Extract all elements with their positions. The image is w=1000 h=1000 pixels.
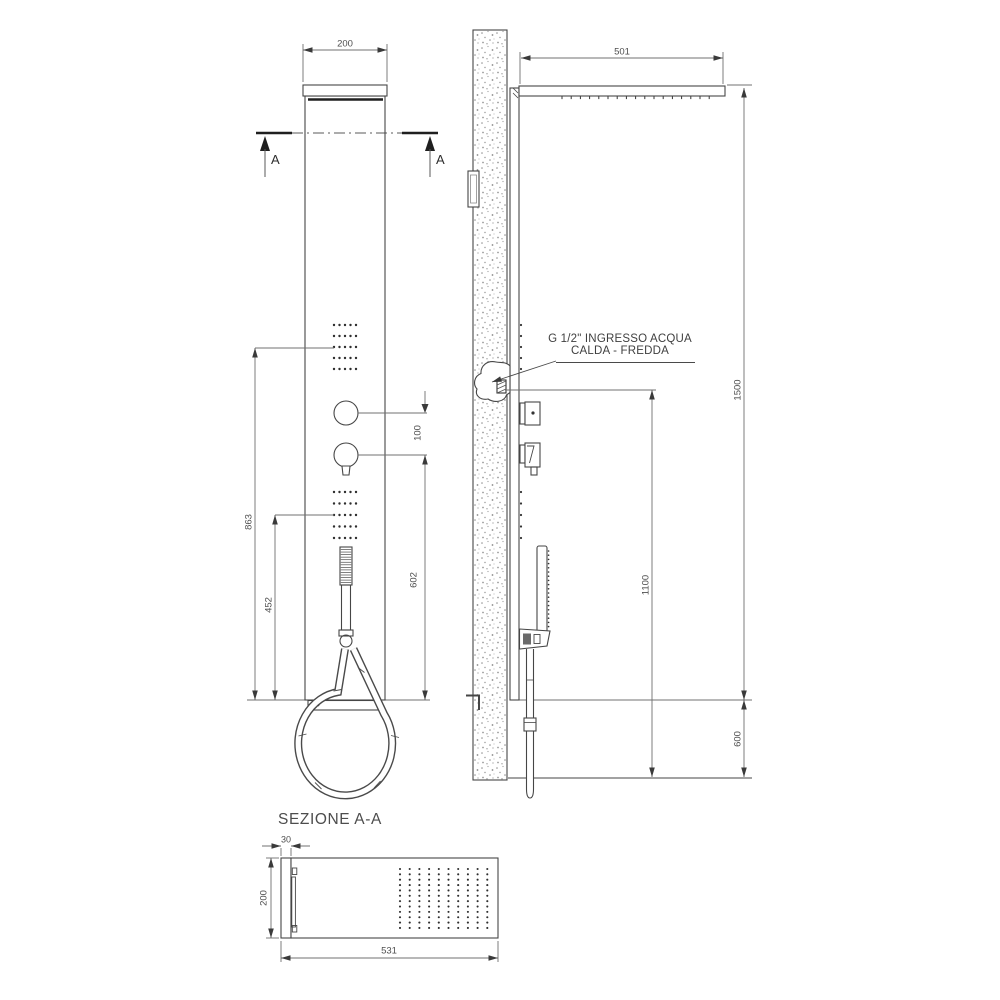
hose-connector [524, 718, 536, 731]
inlet-note-line1: G 1/2" INGRESSO ACQUA [548, 333, 692, 345]
water-inlet-detail [475, 361, 695, 401]
dim-inlet-height: 1100 [641, 575, 651, 595]
handshower-side [520, 546, 551, 649]
front-panel-body [305, 96, 385, 700]
section-panel-strip [281, 858, 291, 938]
technical-drawing-canvas: 200 A A 863 452 100 602 501 1500 1100 60… [0, 0, 1000, 1000]
dim-panel-thickness: 30 [281, 836, 291, 845]
side-panel-profile [510, 88, 519, 700]
upper-wall-bracket [468, 171, 479, 207]
handshower-grip-texture [341, 550, 351, 583]
dim-section-width: 200 [259, 890, 269, 906]
drawing-linework [0, 0, 1000, 1000]
front-shower-head [303, 85, 387, 96]
section-arrow-right [425, 136, 435, 177]
side-diverter-knob [520, 402, 540, 425]
lower-jet-grid [333, 491, 357, 539]
inlet-note: G 1/2" INGRESSO ACQUA CALDA - FREDDA [548, 334, 692, 357]
handshower-side-spray-dots [548, 550, 550, 627]
dim-total-depth: 531 [381, 946, 397, 956]
wall-section [473, 30, 507, 780]
dim-floor-clearance: 600 [733, 731, 743, 747]
hose-loop [298, 649, 399, 795]
section-head-body [291, 858, 498, 938]
section-view [262, 846, 498, 962]
mixer-knob-handle [342, 466, 350, 475]
dim-mixer-to-bottom: 602 [409, 572, 419, 588]
side-upper-jets [520, 324, 522, 370]
dim-head-depth: 501 [614, 47, 630, 57]
dim-panel-height: 1500 [733, 379, 743, 400]
upper-jet-grid [333, 324, 357, 370]
section-title: SEZIONE A-A [278, 811, 382, 829]
side-lower-jets [520, 491, 522, 539]
section-arrow-left [260, 136, 270, 177]
handshower-front [339, 547, 353, 647]
section-cut-line [256, 133, 438, 177]
dim-upper-jets-height: 863 [244, 514, 254, 530]
side-mixer-knob [520, 443, 540, 475]
diverter-knob [334, 401, 358, 425]
dim-panel-width: 200 [337, 39, 353, 49]
dim-knob-spacing: 100 [413, 425, 423, 441]
section-marker-left: A [271, 153, 280, 166]
section-marker-right: A [436, 153, 445, 166]
dim-handshower-height: 452 [264, 597, 274, 613]
shower-head-nozzles [562, 97, 709, 100]
mixer-knob [334, 443, 358, 467]
side-view [466, 30, 752, 798]
side-dimensions [505, 52, 752, 777]
inlet-note-line2: CALDA - FREDDA [571, 345, 669, 357]
side-shower-arm [519, 86, 725, 96]
hose-side [524, 649, 536, 798]
